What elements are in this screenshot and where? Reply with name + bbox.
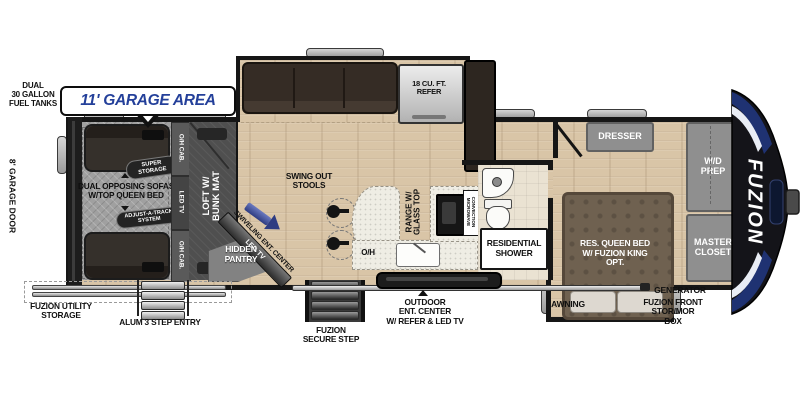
outdoor-ent-label: OUTDOOR ENT. CENTER W/ REFER & LED TV xyxy=(366,298,484,326)
step-entry-label: ALUM 3 STEP ENTRY xyxy=(110,318,210,327)
refer-vent xyxy=(412,115,446,119)
bed-label: RES. QUEEN BED W/ FUZION KING OPT. xyxy=(569,239,661,268)
toilet xyxy=(486,206,510,230)
stool-arm xyxy=(338,241,349,245)
brand-logo: FUZION xyxy=(744,159,766,245)
microwave-label: CONVECTION MICROWAVE xyxy=(465,192,475,232)
garage-area-callout: 11' GARAGE AREA xyxy=(60,86,236,116)
step xyxy=(141,301,185,310)
oh-cab-top-label: O/H CAB. xyxy=(177,124,184,172)
storage-rail xyxy=(32,292,226,297)
step xyxy=(141,291,185,300)
garage-sofas-label: DUAL OPPOSING SOFAS W/TOP QUEEN BED xyxy=(70,182,182,201)
outdoor-ent-center-unit xyxy=(376,272,502,289)
range-label: RANGE W/ GLASS TOP xyxy=(406,186,423,238)
front-storage-label: FUZION FRONT STOR/MOR BOX xyxy=(630,298,716,326)
ramp-door-inner-line xyxy=(72,121,75,281)
living-sofa xyxy=(242,62,398,114)
step xyxy=(311,311,359,320)
swing-stools-label: SWING OUT STOOLS xyxy=(280,172,338,191)
refer-label: 18 CU. FT. REFER xyxy=(402,80,456,97)
alum-entry-steps xyxy=(137,280,189,316)
oh-cab-bottom-label: O/H CAB. xyxy=(177,231,184,279)
sofa-seat-edge xyxy=(244,101,396,112)
sofa-accent xyxy=(142,262,164,272)
refrigerator: 18 CU. FT. REFER xyxy=(398,64,464,124)
garage-ramp-door xyxy=(68,117,82,285)
step xyxy=(141,281,185,290)
floorplan-canvas: DUAL OPPOSING SOFAS W/TOP QUEEN BED SUPE… xyxy=(0,0,800,400)
fuel-tanks-label: DUAL 30 GALLON FUEL TANKS xyxy=(4,82,62,109)
storage-rail xyxy=(32,285,226,290)
stool-arm xyxy=(338,209,349,213)
range xyxy=(436,194,466,236)
sink-drain xyxy=(492,177,502,187)
hidden-pantry-label: HIDDEN PANTRY xyxy=(212,245,270,264)
front-cap-graphic: FUZION xyxy=(724,84,800,320)
loft-mat xyxy=(197,128,227,140)
wardrobe xyxy=(464,60,496,172)
bath-wall-top xyxy=(462,160,553,165)
hitch-pin-box xyxy=(786,190,799,214)
range-top xyxy=(442,202,456,224)
bath-door-gap xyxy=(548,170,553,198)
shower-label: RESIDENTIAL SHOWER xyxy=(487,239,541,258)
garage-door-label: 8' GARAGE DOOR xyxy=(8,144,17,248)
cushion-line xyxy=(293,68,295,108)
garage-area-callout-text: 11' GARAGE AREA xyxy=(80,92,215,110)
step xyxy=(311,301,359,310)
generator-label: GENERATOR xyxy=(638,286,722,296)
residential-shower: RESIDENTIAL SHOWER xyxy=(480,228,548,270)
garage-sofa-bottom xyxy=(84,232,170,280)
cap-nose-window xyxy=(770,180,783,224)
awning-label: AWNING xyxy=(536,300,600,310)
secure-step-label: FUZION SECURE STEP xyxy=(298,326,364,345)
led-tv-label: LED TV xyxy=(177,182,184,222)
cushion-line xyxy=(343,68,345,108)
outdoor-tv-strip xyxy=(386,277,488,281)
step xyxy=(311,291,359,300)
overhead-cab-label: O/H xyxy=(356,249,380,258)
wd-prep-divider xyxy=(710,126,711,204)
utility-storage-label: FUZION UTILITY STORAGE xyxy=(16,302,106,321)
dresser: DRESSER xyxy=(586,122,654,152)
sofa-accent xyxy=(142,130,164,140)
pointer-up-icon xyxy=(418,290,428,296)
